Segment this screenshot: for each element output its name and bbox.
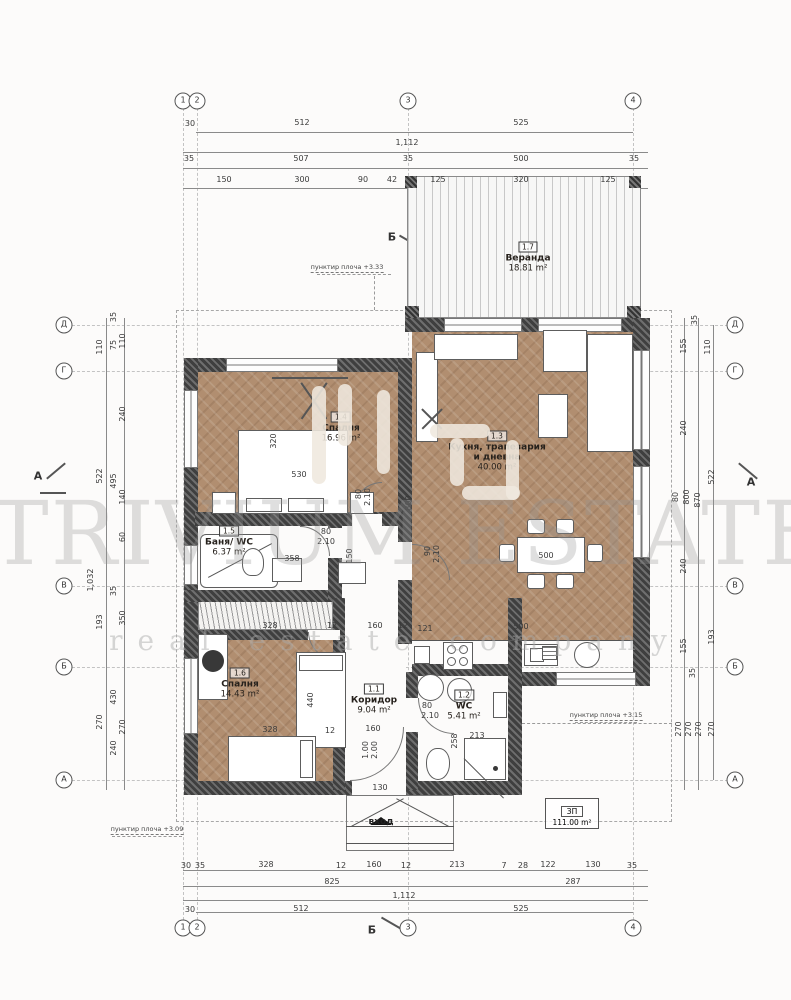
entrance-marker: вход — [358, 798, 404, 828]
elevation-note: пунктир плоча +3.15 — [570, 711, 643, 721]
built-area-value: 111.00 m² — [546, 818, 598, 828]
watermark-tagline: real estate company — [0, 624, 791, 657]
built-area-label: ЗП — [561, 806, 583, 817]
logo-watermark-bar — [430, 424, 490, 438]
elevation-note: пунктир плоча +3.33 — [311, 263, 384, 273]
logo-watermark-bar — [338, 384, 352, 446]
logo-watermark-bar — [377, 390, 390, 474]
watermark-brand: TRIVIUM ESTATE — [0, 488, 791, 580]
logo-watermark-bar — [450, 438, 464, 486]
logo-watermark-bar — [312, 386, 326, 484]
built-area-box: ЗП 111.00 m² — [545, 798, 599, 829]
floor-plan-canvas: 305125251,112355073550035150300904212532… — [0, 0, 791, 1000]
elevation-note: пунктир плоча +3.09 — [111, 825, 184, 835]
entrance-label: вход — [358, 817, 404, 828]
